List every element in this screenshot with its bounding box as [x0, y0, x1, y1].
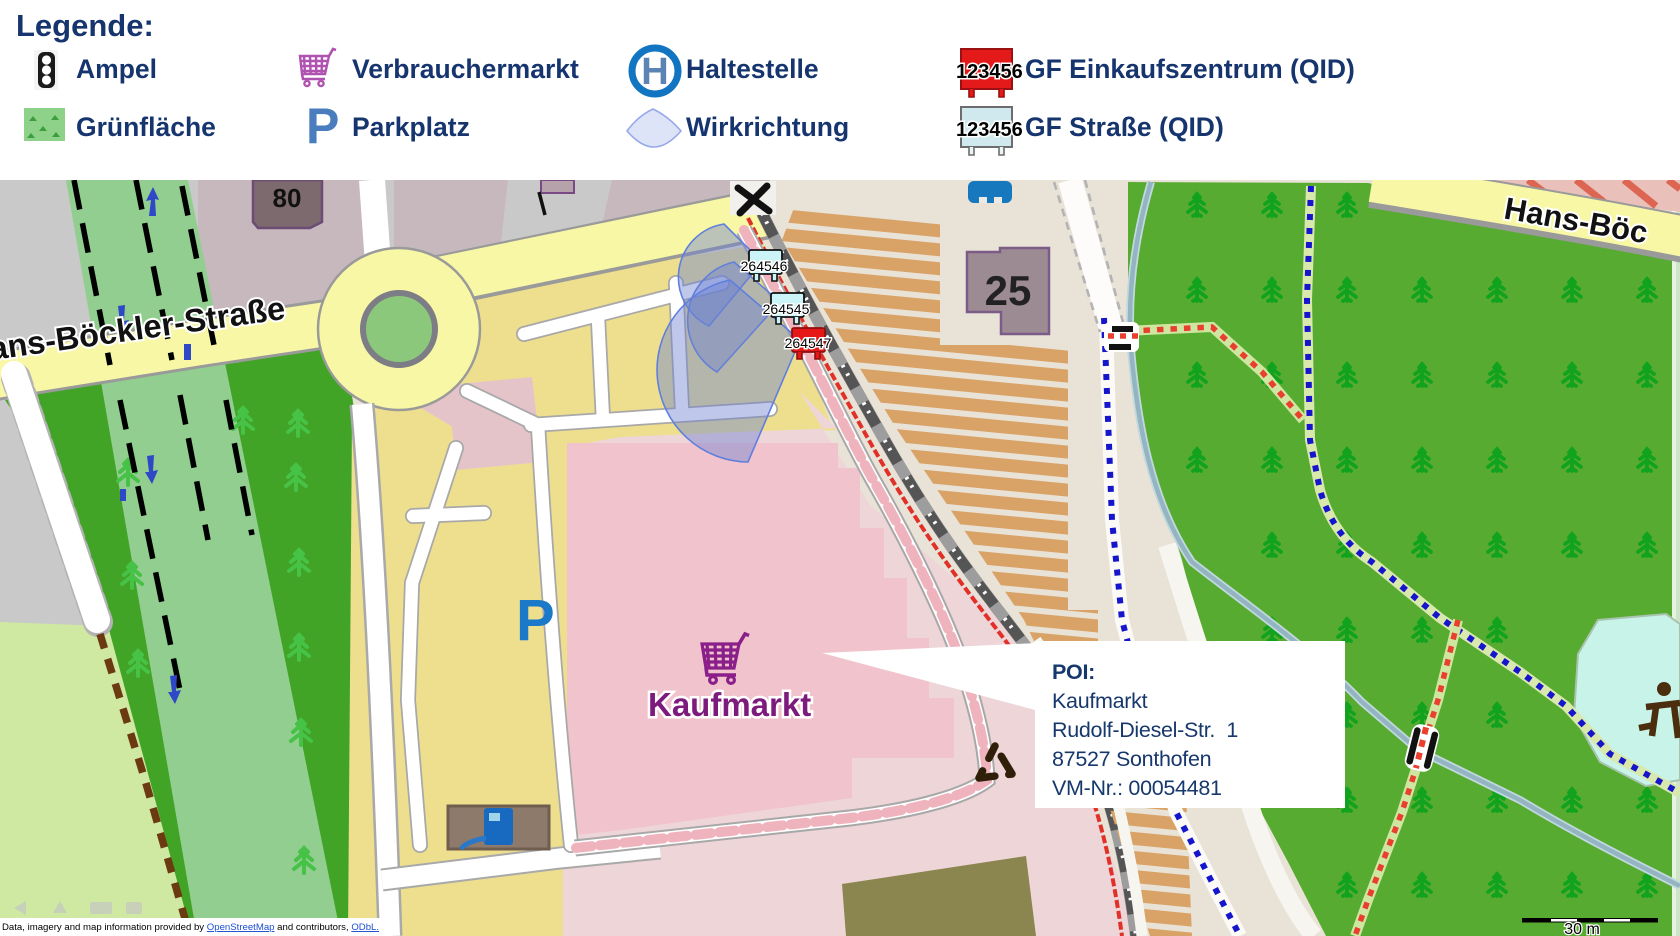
- svg-text:Rudolf-Diesel-Str. 1: Rudolf-Diesel-Str. 1: [1052, 718, 1238, 742]
- svg-text:123456: 123456: [956, 61, 1023, 83]
- svg-text:123456: 123456: [956, 119, 1023, 141]
- svg-text:POI:: POI:: [1052, 660, 1095, 684]
- svg-text:30 m: 30 m: [1564, 921, 1600, 936]
- svg-text:H: H: [641, 51, 668, 93]
- svg-text:87527 Sonthofen: 87527 Sonthofen: [1052, 747, 1211, 771]
- svg-text:P: P: [306, 98, 339, 154]
- svg-text:80: 80: [273, 183, 302, 213]
- svg-text:P: P: [516, 588, 555, 653]
- svg-text:25: 25: [985, 267, 1032, 314]
- svg-text:264546: 264546: [741, 258, 788, 274]
- svg-text:264545: 264545: [763, 301, 810, 317]
- svg-text:Kaufmarkt: Kaufmarkt: [648, 686, 811, 723]
- svg-text:Kaufmarkt: Kaufmarkt: [1052, 689, 1148, 713]
- svg-text:VM-Nr.: 00054481: VM-Nr.: 00054481: [1052, 776, 1222, 800]
- svg-text:Data, imagery and map informat: Data, imagery and map information provid…: [2, 922, 379, 933]
- svg-text:264547: 264547: [785, 335, 832, 351]
